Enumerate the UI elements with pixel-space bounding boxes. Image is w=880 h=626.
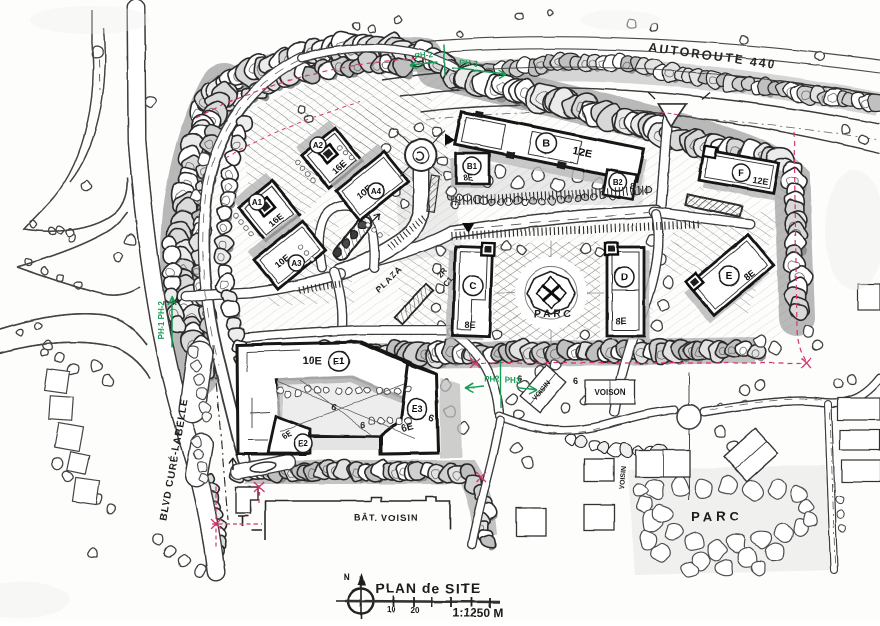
svg-text:A4: A4 <box>371 187 382 196</box>
svg-text:E: E <box>726 272 733 283</box>
svg-text:D: D <box>620 273 627 284</box>
svg-text:A2: A2 <box>313 141 324 150</box>
svg-text:10: 10 <box>387 605 396 614</box>
svg-text:8E: 8E <box>615 316 626 326</box>
svg-text:N: N <box>344 572 351 582</box>
svg-text:BÂT. VOISIN: BÂT. VOISIN <box>354 512 418 523</box>
svg-text:10E: 10E <box>302 355 322 367</box>
svg-text:B2: B2 <box>613 178 624 187</box>
svg-text:VOISON: VOISON <box>594 388 625 397</box>
svg-text:A3: A3 <box>291 259 302 268</box>
svg-text:6: 6 <box>573 376 578 386</box>
svg-text:1:1250 M: 1:1250 M <box>453 606 504 620</box>
svg-text:B: B <box>542 139 549 150</box>
svg-text:E1: E1 <box>333 356 344 366</box>
svg-text:E3: E3 <box>411 404 422 414</box>
svg-text:6: 6 <box>361 421 366 430</box>
svg-text:PLAN de SITE: PLAN de SITE <box>375 580 480 596</box>
svg-text:PARC: PARC <box>534 309 574 320</box>
svg-text:F: F <box>738 168 744 178</box>
svg-text:A1: A1 <box>252 198 263 207</box>
svg-text:E2: E2 <box>298 439 308 448</box>
svg-text:C: C <box>469 282 476 293</box>
svg-text:PH2: PH2 <box>484 375 500 384</box>
svg-text:8E: 8E <box>464 320 475 330</box>
svg-text:20: 20 <box>411 606 420 615</box>
svg-text:PH3: PH3 <box>505 376 521 385</box>
svg-text:B1: B1 <box>467 162 478 171</box>
svg-text:PH-1 PH-2: PH-1 PH-2 <box>157 300 166 339</box>
svg-text:PARC: PARC <box>691 509 743 524</box>
svg-text:8E: 8E <box>463 174 473 183</box>
